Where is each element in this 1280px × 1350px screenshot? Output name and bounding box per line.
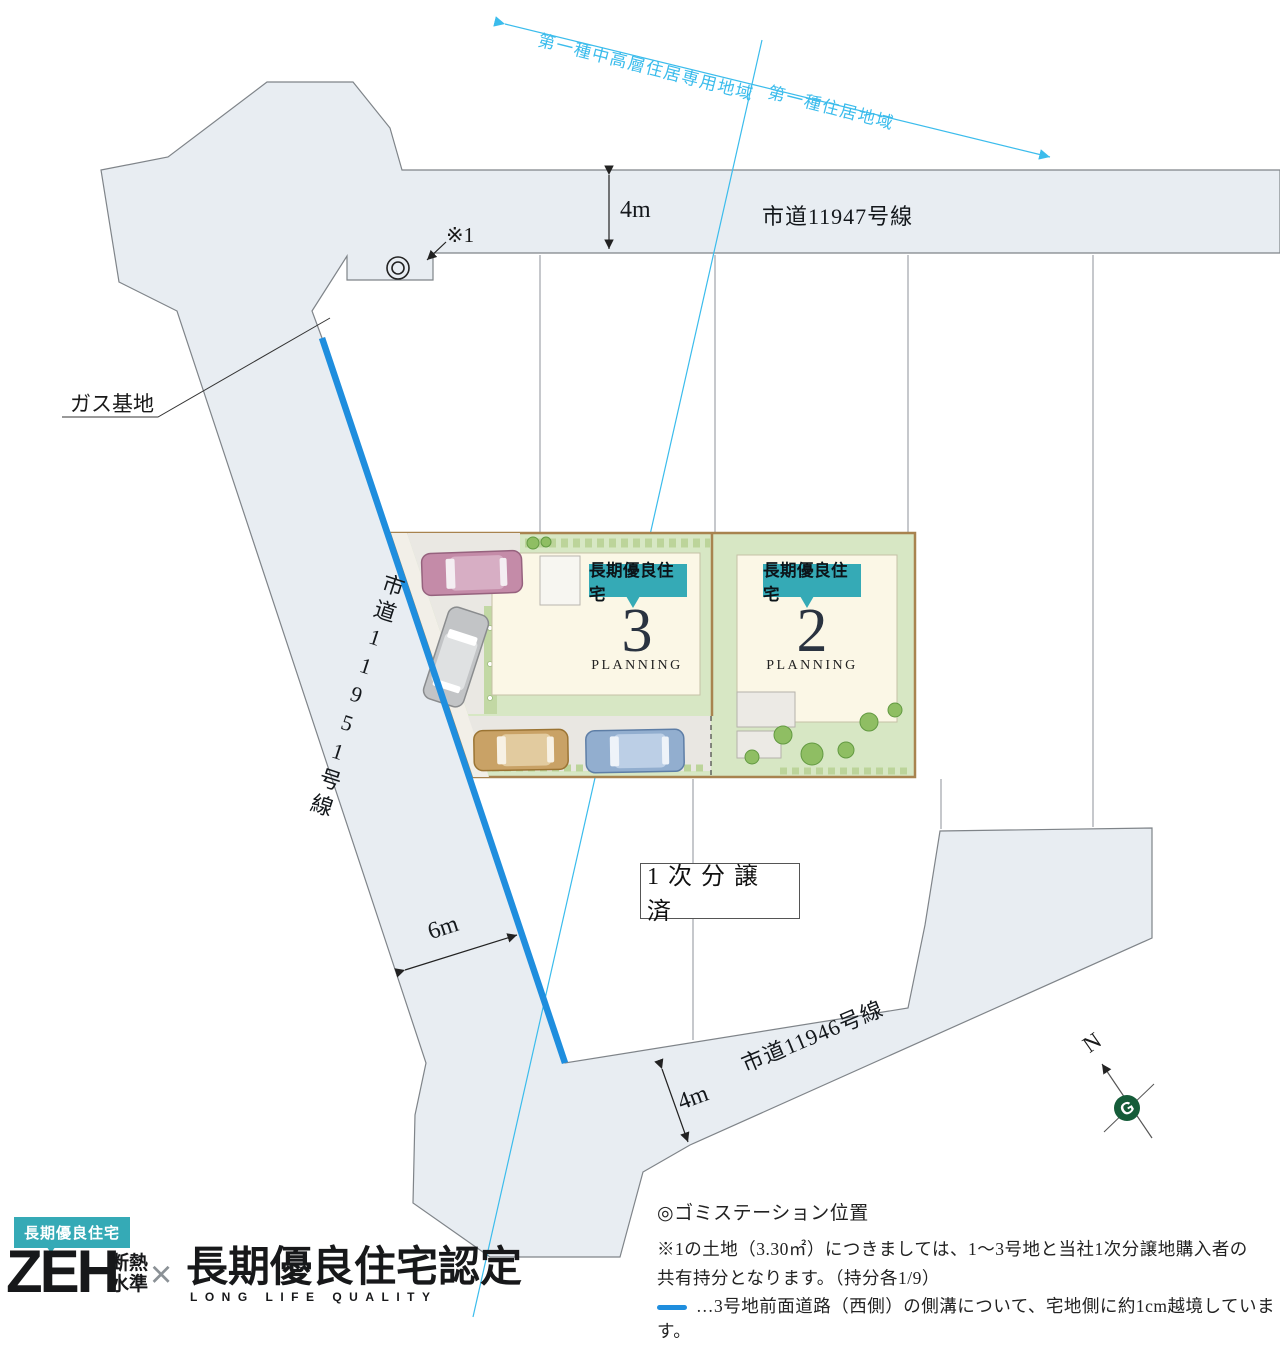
road-name-top: 市道11947号線 [762,199,913,231]
sold-phase1-box: 1次分譲済 [640,863,800,919]
car-tan [474,729,569,771]
legend-note2-text: …3号地前面道路（西側）の側溝について、宅地側に約1cm越境しています。 [657,1296,1275,1341]
gas-label: ガス基地 [70,388,154,418]
lot2-badge: 長期優良住宅 [763,564,861,597]
logo-zeh-sub-line1: 断熱 [110,1254,148,1275]
compass: G [1102,1064,1154,1138]
lot3-number: 3 [577,600,697,662]
lot3-planning: PLANNING [577,658,697,674]
logo-subtitle-en: LONG LIFE QUALITY [190,1290,438,1304]
blue-line-swatch [657,1305,687,1310]
site-plan: G 第一種中高層住居専用地域 第一種住居地域 市道11947号線 4m 市道11… [0,0,1280,1350]
legend-note1-line1: ※1の土地（3.30㎡）につきましては、1～3号地と当社1次分譲地購入者の [657,1236,1248,1261]
legend-note2: …3号地前面道路（西側）の側溝について、宅地側に約1cm越境しています。 [657,1293,1280,1343]
car-pink [421,550,522,595]
lot3-badge: 長期優良住宅 [589,564,687,597]
road-width-top: 4m [620,197,651,224]
legend-note1-line2: 共有持分となります。（持分各1/9） [657,1265,940,1290]
ref1-label: ※1 [446,223,474,248]
lot2-porch-upper [737,692,795,727]
logo-zeh: ZEH [6,1242,117,1302]
logo-main: 長期優良住宅認定 [186,1246,522,1288]
logo-times-icon: × [150,1254,172,1297]
car-blue [586,729,685,773]
lot3-entrance-porch [540,556,580,605]
logo-zeh-sub-line2: 水準 [110,1275,148,1296]
logo-zeh-sub: 断熱 水準 [110,1254,148,1295]
lot2-number: 2 [752,600,872,662]
legend-garbage: ◎ゴミステーション位置 [657,1198,869,1225]
lot2-planning: PLANNING [752,658,872,674]
